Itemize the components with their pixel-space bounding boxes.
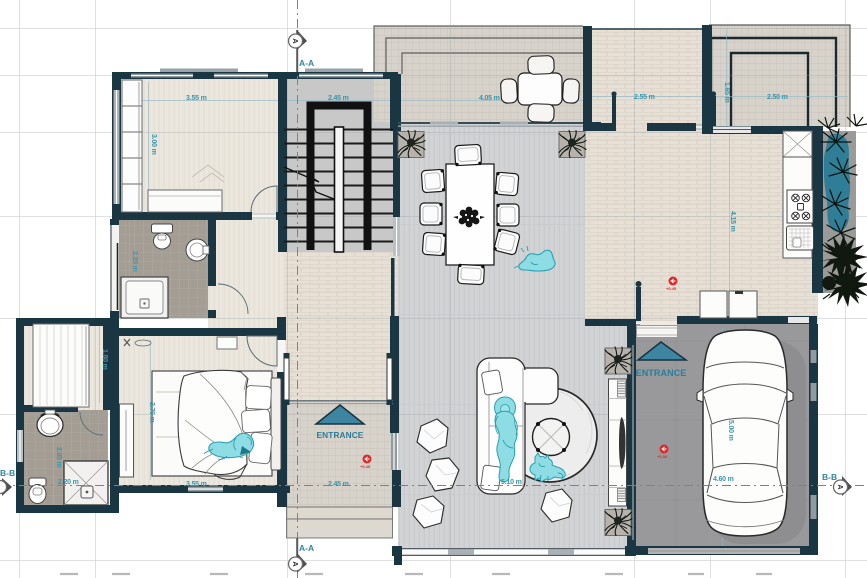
- svg-text:3.55 m: 3.55 m: [186, 481, 207, 488]
- svg-text:A: A: [291, 561, 300, 567]
- svg-text:1.80 m: 1.80 m: [101, 349, 108, 370]
- svg-text:+0.45: +0.45: [666, 286, 677, 291]
- svg-text:5.10 m: 5.10 m: [501, 479, 522, 486]
- svg-text:4.05 m: 4.05 m: [479, 95, 500, 102]
- svg-text:2.50 m: 2.50 m: [767, 94, 788, 101]
- svg-text:+0.30: +0.30: [657, 454, 668, 459]
- svg-text:2.20 m: 2.20 m: [58, 479, 79, 486]
- svg-text:2.45 m: 2.45 m: [328, 95, 349, 102]
- svg-text:+0.45: +0.45: [360, 464, 371, 469]
- svg-text:3.00 m: 3.00 m: [150, 134, 157, 155]
- svg-text:1.65 m: 1.65 m: [723, 82, 730, 103]
- svg-text:2.55 m: 2.55 m: [634, 94, 655, 101]
- svg-text:4.60 m: 4.60 m: [713, 476, 734, 483]
- svg-text:2.20 m: 2.20 m: [131, 251, 138, 272]
- svg-text:5.00 m: 5.00 m: [727, 420, 734, 441]
- svg-text:A: A: [291, 38, 300, 44]
- svg-text:ENTRANCE: ENTRANCE: [317, 430, 364, 440]
- svg-text:ENTRANCE: ENTRANCE: [636, 368, 687, 378]
- svg-text:4.15 m: 4.15 m: [729, 211, 736, 232]
- svg-text:A-A: A-A: [299, 543, 314, 553]
- svg-text:A-A: A-A: [299, 58, 314, 68]
- svg-text:B-B: B-B: [822, 472, 837, 482]
- svg-text:3.70 m: 3.70 m: [148, 402, 155, 423]
- svg-text:2.05 m: 2.05 m: [55, 447, 62, 468]
- svg-text:B-B: B-B: [0, 468, 15, 478]
- svg-text:3.55 m: 3.55 m: [186, 95, 207, 102]
- svg-text:2.45 m: 2.45 m: [328, 481, 349, 488]
- svg-text:A: A: [836, 484, 843, 489]
